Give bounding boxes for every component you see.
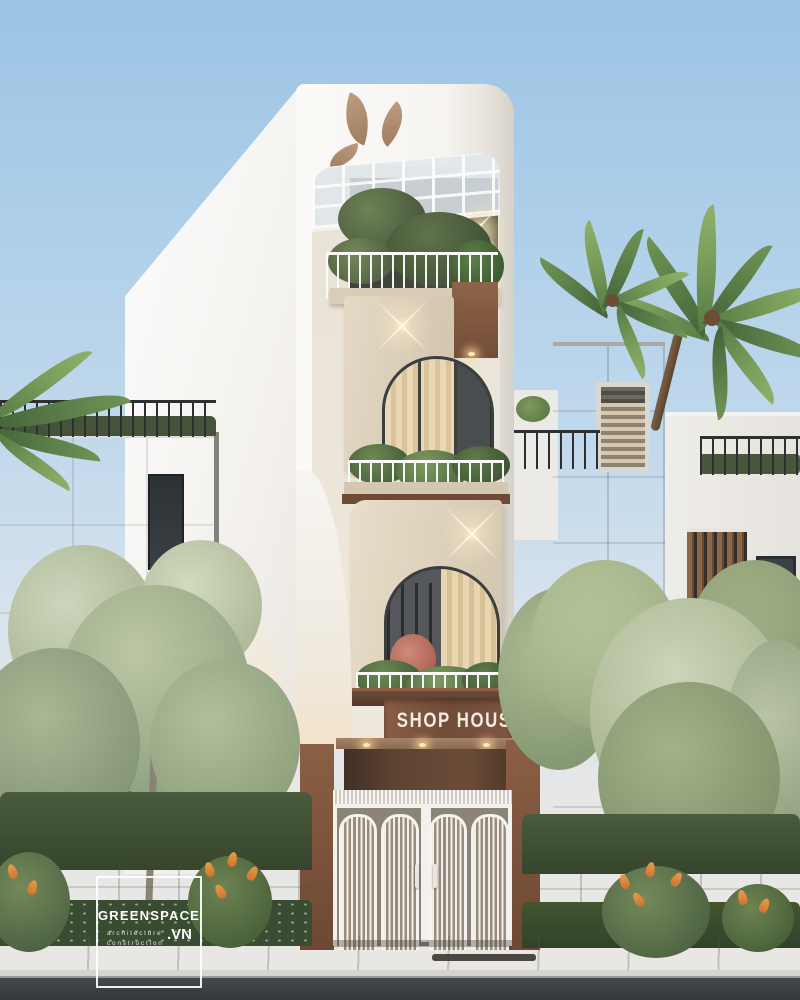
watermark-brand: GREENSPACE — [98, 908, 200, 923]
sign-downlight — [363, 743, 370, 747]
hedge-upper-right — [522, 814, 800, 874]
shop-sign-text: SHOP HOUSE — [397, 709, 499, 733]
leaf-icon — [370, 101, 415, 147]
sign-downlight — [483, 743, 490, 747]
palm-crown-core — [704, 310, 720, 326]
gate-transom — [333, 790, 512, 804]
gap-balcony-railing — [512, 430, 600, 469]
gate-arch-panel — [381, 814, 419, 950]
concrete-tower-window-shade — [601, 387, 645, 403]
sign-downlight — [419, 743, 426, 747]
gate-handle — [415, 864, 419, 888]
gate-arch-panel — [339, 814, 377, 950]
watermark-tagline-1: architecture — [107, 930, 163, 937]
copper-wall-panel — [452, 282, 498, 358]
gate-handle — [433, 864, 437, 888]
gap-balcony-palm — [516, 396, 550, 422]
drain-grate — [432, 954, 536, 961]
brand-watermark: GREENSPACE architecture construction .VN — [96, 876, 202, 988]
right-roof-railing — [700, 436, 800, 475]
watermark-tagline-2: construction — [107, 940, 164, 947]
shop-gate — [333, 804, 512, 946]
leaf-icon — [336, 92, 379, 145]
palm-crown-core — [606, 294, 619, 307]
watermark-domain-suffix: .VN — [167, 926, 192, 943]
architectural-render: SHOP HOUSE — [0, 0, 800, 1000]
storefront-upper-band — [344, 749, 520, 791]
leaf-cutout-logo — [332, 94, 418, 164]
gate-arch-panel — [471, 814, 509, 950]
copper-panel-downlight — [468, 352, 475, 356]
shop-sign-panel: SHOP HOUSE — [384, 698, 512, 742]
